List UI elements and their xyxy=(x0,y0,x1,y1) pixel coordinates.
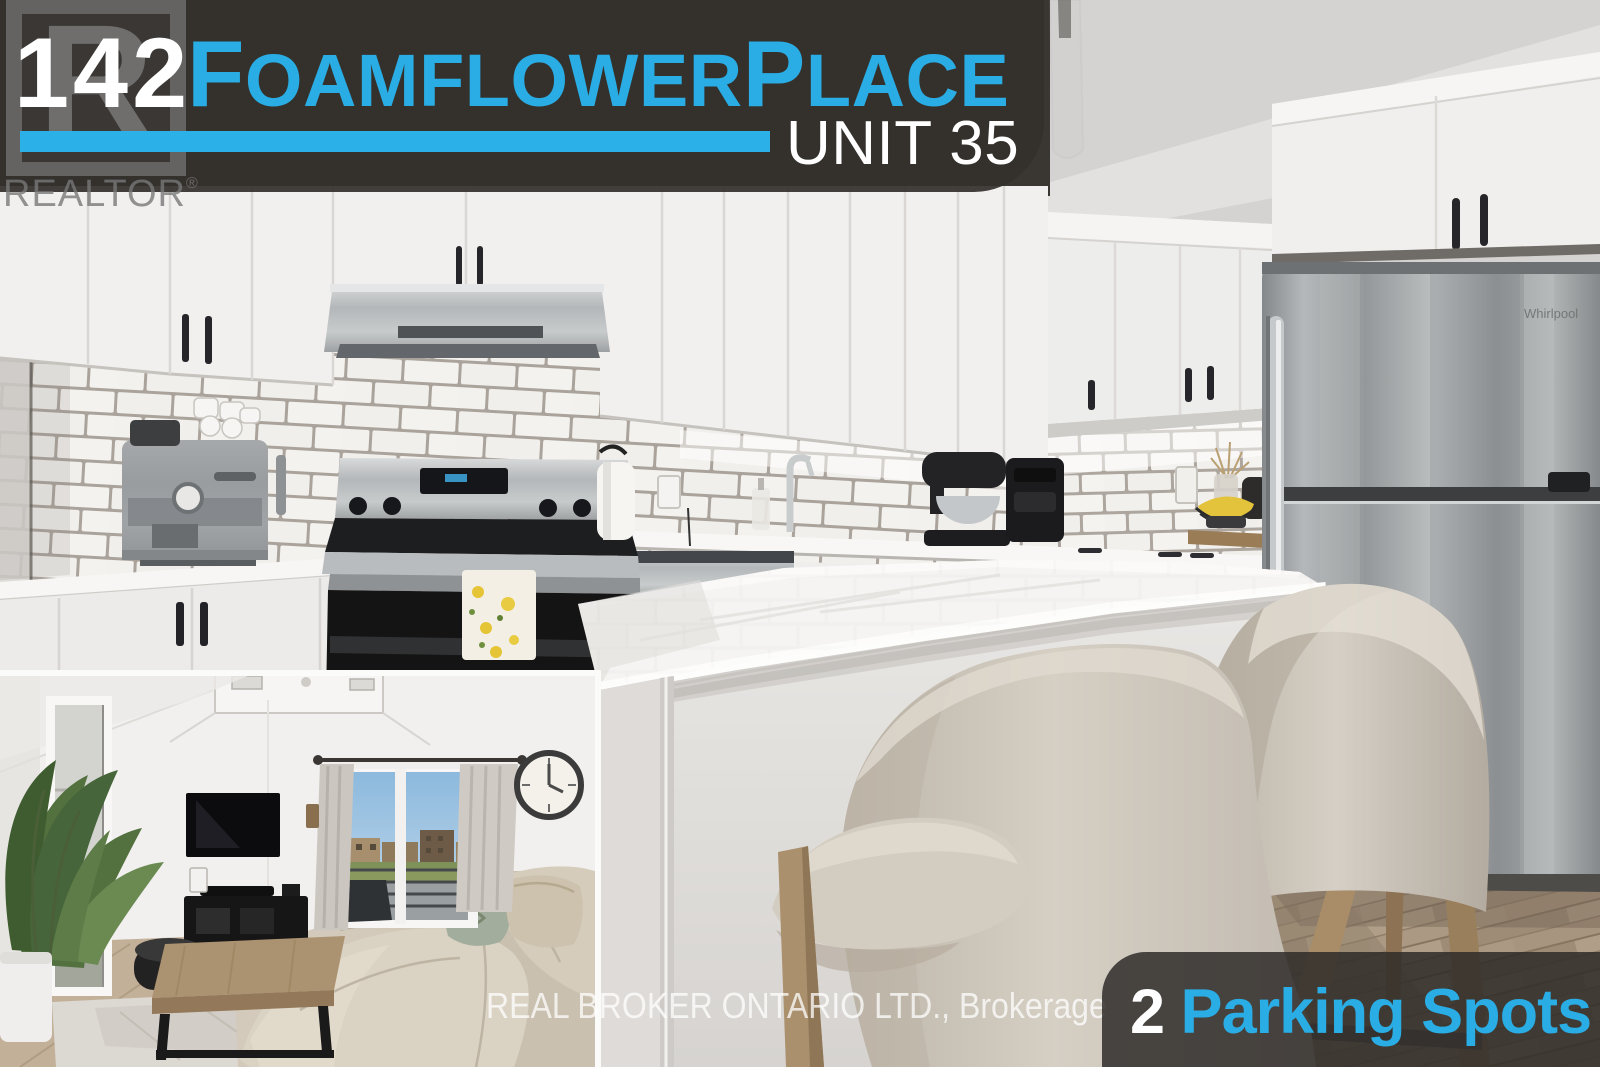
svg-text:Whirlpool: Whirlpool xyxy=(1524,306,1578,321)
